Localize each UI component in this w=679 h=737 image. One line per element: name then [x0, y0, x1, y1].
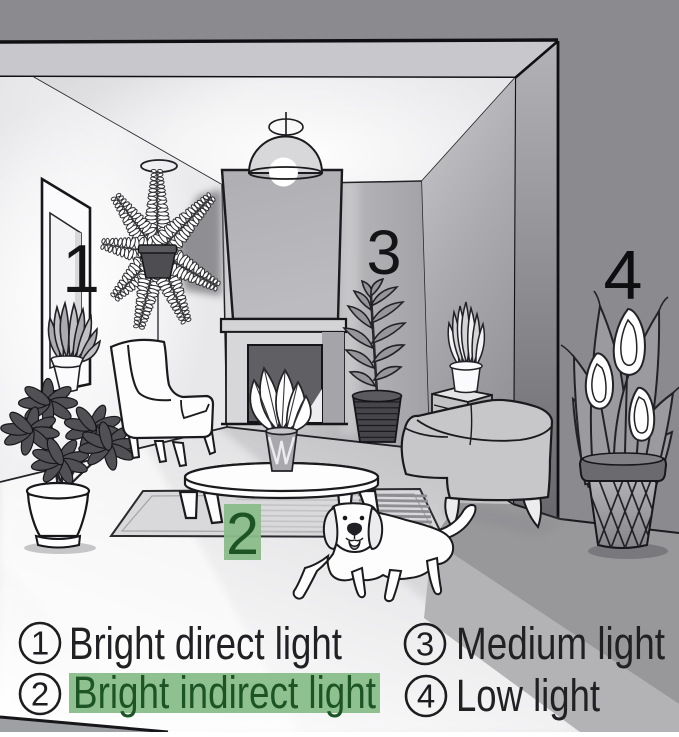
- svg-text:3: 3: [416, 626, 434, 663]
- svg-text:1: 1: [62, 231, 100, 307]
- svg-text:Bright indirect light: Bright indirect light: [73, 667, 376, 718]
- svg-text:Low light: Low light: [456, 670, 600, 721]
- svg-text:4: 4: [417, 678, 435, 715]
- svg-text:Medium light: Medium light: [456, 618, 665, 669]
- svg-text:Bright direct light: Bright direct light: [69, 618, 342, 669]
- svg-text:2: 2: [31, 676, 49, 713]
- svg-text:1: 1: [31, 625, 49, 662]
- svg-text:3: 3: [366, 218, 401, 288]
- svg-text:4: 4: [604, 236, 643, 314]
- svg-text:2: 2: [226, 501, 259, 567]
